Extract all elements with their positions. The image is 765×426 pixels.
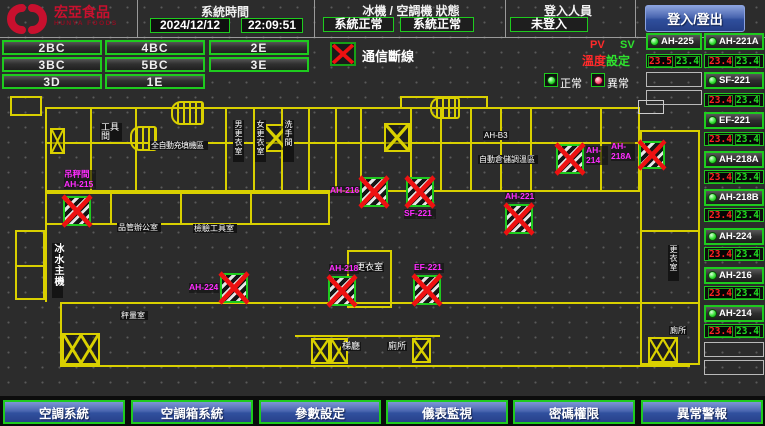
unit-name: AH-218A bbox=[719, 154, 759, 165]
status-led bbox=[708, 155, 717, 164]
status-led bbox=[708, 309, 717, 318]
nav-button-alarm[interactable]: 異常警報 bbox=[641, 400, 763, 424]
empty-slot bbox=[704, 342, 764, 357]
device-offline-icon-ah-224[interactable] bbox=[220, 273, 248, 303]
unit-ah-218a[interactable]: AH-218A bbox=[704, 151, 764, 168]
status-led bbox=[708, 232, 717, 241]
room-label: 秤量室 bbox=[120, 311, 148, 320]
setting-label: 設定 bbox=[606, 54, 630, 68]
spiral-stair-icon bbox=[430, 97, 460, 119]
unit-ah-224[interactable]: AH-224 bbox=[704, 228, 764, 245]
floor-button-2bc[interactable]: 2BC bbox=[2, 40, 102, 55]
unit-name: AH-224 bbox=[719, 231, 752, 242]
unit-ah-225-values: 23.523.4 bbox=[646, 54, 702, 68]
pv-value: 23.4 bbox=[708, 172, 733, 183]
sv-value: 23.4 bbox=[735, 172, 760, 183]
nav-button-ahu-system[interactable]: 空調箱系統 bbox=[131, 400, 253, 424]
room-label: 品管辦公室 bbox=[117, 223, 161, 232]
ac-status-value: 系統正常 bbox=[400, 17, 474, 32]
sv-value: 23.4 bbox=[735, 288, 760, 299]
device-label: AH-224 bbox=[189, 283, 219, 293]
unit-sf-221-values: 23.423.4 bbox=[704, 93, 764, 107]
floor-button-5bc[interactable]: 5BC bbox=[105, 57, 205, 72]
chiller-status-value: 系統正常 bbox=[323, 17, 394, 32]
room-label: 全自動充填機區 bbox=[150, 141, 208, 150]
pv-value: 23.4 bbox=[708, 134, 733, 145]
device-label: AH-218 bbox=[329, 264, 359, 274]
stairs-icon bbox=[384, 123, 410, 152]
wall-segment bbox=[295, 335, 440, 337]
device-offline-icon-ah-218[interactable] bbox=[328, 276, 356, 306]
device-label: AH-218A bbox=[611, 142, 635, 161]
unit-ef-221-values: 23.423.4 bbox=[704, 132, 764, 146]
wall-segment bbox=[470, 107, 472, 192]
status-led bbox=[650, 37, 659, 46]
abnormal-label: 異常 bbox=[607, 75, 629, 91]
floor-button-1e[interactable]: 1E bbox=[105, 74, 205, 89]
device-offline-icon-sf-221[interactable] bbox=[406, 177, 434, 207]
hmi-screen: 宏亞食品 HUNYA FOODS 系統時間 2024/12/12 22:09:5… bbox=[0, 0, 765, 426]
device-offline-icon-ef-221[interactable] bbox=[413, 275, 441, 305]
unit-ef-221[interactable]: EF-221 bbox=[704, 112, 764, 129]
unit-ah-218b-values: 23.423.4 bbox=[704, 208, 764, 222]
normal-label: 正常 bbox=[560, 75, 582, 91]
unit-name: AH-216 bbox=[719, 270, 752, 281]
room-label: 工具間 bbox=[100, 123, 122, 141]
sv-value: 23.4 bbox=[735, 326, 760, 337]
room-label: AH-B3 bbox=[483, 131, 509, 140]
login-status-value: 未登入 bbox=[510, 17, 588, 32]
unit-name: EF-221 bbox=[719, 115, 750, 126]
sv-value: 23.4 bbox=[675, 56, 700, 67]
logo: 宏亞食品 HUNYA FOODS bbox=[4, 2, 136, 36]
room-label: 男更衣室 bbox=[233, 120, 244, 162]
wall-segment bbox=[180, 192, 182, 225]
room-label: 檢驗工具室 bbox=[193, 224, 237, 233]
room-label: 更衣室 bbox=[355, 263, 384, 272]
temp-setting-label: 溫度設定 bbox=[582, 52, 630, 69]
room-label: 廁所 bbox=[387, 342, 407, 351]
unit-ah-225[interactable]: AH-225 bbox=[646, 33, 702, 50]
sv-label: SV bbox=[620, 39, 635, 51]
device-label: AH-221 bbox=[505, 192, 535, 202]
temp-label: 溫度 bbox=[582, 54, 606, 68]
nav-button-meter-monitor[interactable]: 儀表監視 bbox=[386, 400, 508, 424]
device-offline-icon-ah-216[interactable] bbox=[360, 177, 388, 207]
system-date-value: 2024/12/12 bbox=[150, 18, 230, 33]
normal-led bbox=[544, 73, 558, 87]
logo-icon bbox=[6, 3, 48, 35]
pv-value: 23.4 bbox=[708, 210, 733, 221]
pv-value: 23.4 bbox=[708, 288, 733, 299]
unit-ah-216[interactable]: AH-216 bbox=[704, 267, 764, 284]
device-offline-icon-ah-218a[interactable] bbox=[639, 141, 665, 169]
room-label: 梯廳 bbox=[341, 342, 361, 351]
sv-value: 23.4 bbox=[735, 56, 760, 67]
floor-button-3bc[interactable]: 3BC bbox=[2, 57, 102, 72]
wall-segment bbox=[638, 100, 664, 114]
stairs-icon bbox=[648, 337, 678, 363]
wall-segment bbox=[225, 107, 227, 192]
room-label: 更衣室 bbox=[668, 245, 679, 281]
room-label: 女更衣室 bbox=[255, 120, 266, 162]
unit-ah-216-values: 23.423.4 bbox=[704, 286, 764, 300]
unit-ah-221a[interactable]: AH-221A bbox=[704, 33, 764, 50]
empty-slot bbox=[704, 360, 764, 375]
wall-segment bbox=[530, 107, 532, 192]
divider bbox=[137, 0, 138, 37]
wall-segment bbox=[308, 107, 310, 192]
comm-fail-legend-label: 通信斷線 bbox=[362, 46, 414, 65]
spiral-stair-icon bbox=[171, 101, 204, 125]
unit-name: AH-214 bbox=[719, 308, 752, 319]
abnormal-led bbox=[591, 73, 605, 87]
nav-button-parameters[interactable]: 參數設定 bbox=[259, 400, 381, 424]
device-label: AH-216 bbox=[330, 186, 360, 196]
room-label: 自動倉儲調溫區 bbox=[478, 155, 538, 164]
device-label: EF-221 bbox=[414, 263, 444, 273]
nav-button-ac-system[interactable]: 空調系統 bbox=[3, 400, 125, 424]
nav-button-password[interactable]: 密碼權限 bbox=[513, 400, 635, 424]
stairs-icon bbox=[412, 338, 431, 363]
floor-button-3d[interactable]: 3D bbox=[2, 74, 102, 89]
wall-segment bbox=[60, 365, 690, 367]
unit-ah-218b[interactable]: AH-218B bbox=[704, 189, 764, 206]
device-offline-icon-ah-215[interactable] bbox=[63, 196, 91, 226]
status-led bbox=[708, 193, 717, 202]
floor-button-3e[interactable]: 3E bbox=[209, 57, 309, 72]
device-offline-icon-ah-221[interactable] bbox=[505, 204, 533, 234]
unit-name: AH-218B bbox=[719, 192, 759, 203]
wall-segment bbox=[335, 107, 337, 192]
unit-ah-218a-values: 23.423.4 bbox=[704, 170, 764, 184]
sv-value: 23.4 bbox=[735, 95, 760, 106]
pv-value: 23.4 bbox=[708, 56, 733, 67]
wall-segment bbox=[10, 96, 42, 116]
floor-button-4bc[interactable]: 4BC bbox=[105, 40, 205, 55]
wall-segment bbox=[500, 107, 502, 192]
status-led bbox=[708, 116, 717, 125]
wall-segment bbox=[110, 192, 112, 225]
header-bar: 宏亞食品 HUNYA FOODS 系統時間 2024/12/12 22:09:5… bbox=[0, 0, 765, 37]
pv-value: 23.5 bbox=[648, 56, 673, 67]
sv-value: 23.4 bbox=[735, 210, 760, 221]
floor-button-2e[interactable]: 2E bbox=[209, 40, 309, 55]
pv-value: 23.4 bbox=[708, 95, 733, 106]
room-label: 洗手間 bbox=[283, 120, 294, 162]
sv-value: 23.4 bbox=[735, 134, 760, 145]
unit-name: SF-221 bbox=[719, 75, 750, 86]
logo-subtitle: HUNYA FOODS bbox=[54, 20, 118, 27]
divider bbox=[505, 0, 506, 37]
pv-value: 23.4 bbox=[708, 249, 733, 260]
stairs-icon bbox=[62, 333, 100, 365]
unit-sf-221[interactable]: SF-221 bbox=[704, 72, 764, 89]
wall-segment bbox=[250, 192, 252, 225]
divider bbox=[314, 0, 315, 37]
stairs-icon bbox=[50, 128, 65, 154]
wall-segment bbox=[15, 265, 45, 267]
wall-segment bbox=[640, 230, 700, 232]
logo-title: 宏亞食品 bbox=[54, 5, 118, 20]
room-label: 廁所 bbox=[669, 326, 687, 335]
login-logout-button[interactable]: 登入/登出 bbox=[645, 5, 745, 32]
wall-segment bbox=[440, 107, 442, 192]
unit-name: AH-225 bbox=[661, 36, 694, 47]
device-label: AH-214 bbox=[586, 146, 608, 165]
divider bbox=[635, 0, 636, 37]
room-label: 冰水主機 bbox=[52, 243, 63, 298]
unit-ah-214-values: 23.423.4 bbox=[704, 324, 764, 338]
pv-value: 23.4 bbox=[708, 326, 733, 337]
pv-label: PV bbox=[590, 39, 605, 51]
empty-slot bbox=[646, 72, 702, 87]
status-led bbox=[708, 37, 717, 46]
status-led bbox=[708, 271, 717, 280]
unit-ah-221a-values: 23.423.4 bbox=[704, 54, 764, 68]
stairs-icon bbox=[311, 338, 330, 364]
unit-ah-224-values: 23.423.4 bbox=[704, 247, 764, 261]
unit-name: AH-221A bbox=[719, 36, 759, 47]
wall-segment bbox=[640, 302, 700, 304]
status-led bbox=[708, 76, 717, 85]
system-time-value: 22:09:51 bbox=[241, 18, 303, 33]
device-label: 吊秤間AH-215 bbox=[64, 170, 96, 189]
device-label: SF-221 bbox=[404, 209, 436, 219]
sv-value: 23.4 bbox=[735, 249, 760, 260]
comm-fail-legend-icon bbox=[330, 42, 356, 66]
unit-ah-214[interactable]: AH-214 bbox=[704, 305, 764, 322]
device-offline-icon-ah-214[interactable] bbox=[556, 144, 584, 174]
